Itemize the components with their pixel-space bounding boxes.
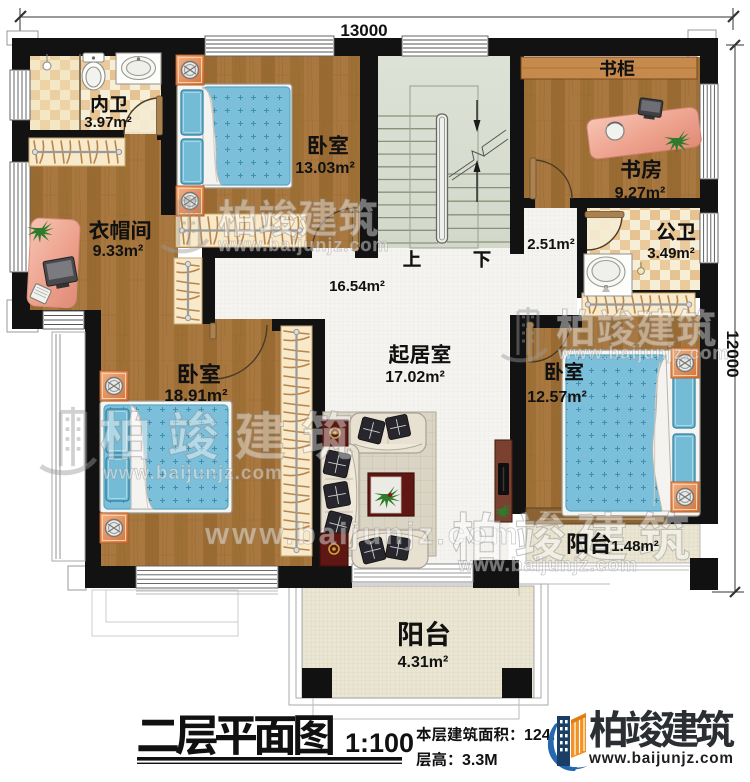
svg-text:www.baijunjz.com: www.baijunjz.com: [102, 463, 283, 484]
svg-text:www.baijunjz.com: www.baijunjz.com: [588, 750, 734, 767]
svg-text:www.baijunjz.com: www.baijunjz.com: [204, 516, 521, 551]
svg-text:2.51m²: 2.51m²: [527, 236, 575, 253]
svg-text:16.54m²: 16.54m²: [329, 278, 385, 295]
svg-text:3.49m²: 3.49m²: [647, 245, 695, 262]
svg-text:13.03m²: 13.03m²: [295, 160, 355, 177]
svg-text:9.27m²: 9.27m²: [615, 185, 666, 202]
svg-text:9.33m²: 9.33m²: [93, 243, 144, 260]
svg-text:17.02m²: 17.02m²: [385, 369, 445, 386]
svg-text:18.91m²: 18.91m²: [164, 386, 228, 405]
svg-text:3.97m²: 3.97m²: [84, 114, 132, 131]
svg-text:13000: 13000: [340, 21, 387, 40]
svg-text:www.baijunjz.com: www.baijunjz.com: [557, 343, 729, 363]
svg-text:www.baijunjz.com: www.baijunjz.com: [457, 555, 638, 576]
svg-text:12.57m²: 12.57m²: [527, 389, 587, 406]
svg-text:3.3M: 3.3M: [462, 752, 498, 769]
svg-text:1.48m²: 1.48m²: [611, 538, 659, 555]
svg-text:www.baijunjz.com: www.baijunjz.com: [217, 235, 389, 255]
svg-text:1:100: 1:100: [345, 728, 414, 758]
svg-text:4.31m²: 4.31m²: [398, 654, 449, 671]
